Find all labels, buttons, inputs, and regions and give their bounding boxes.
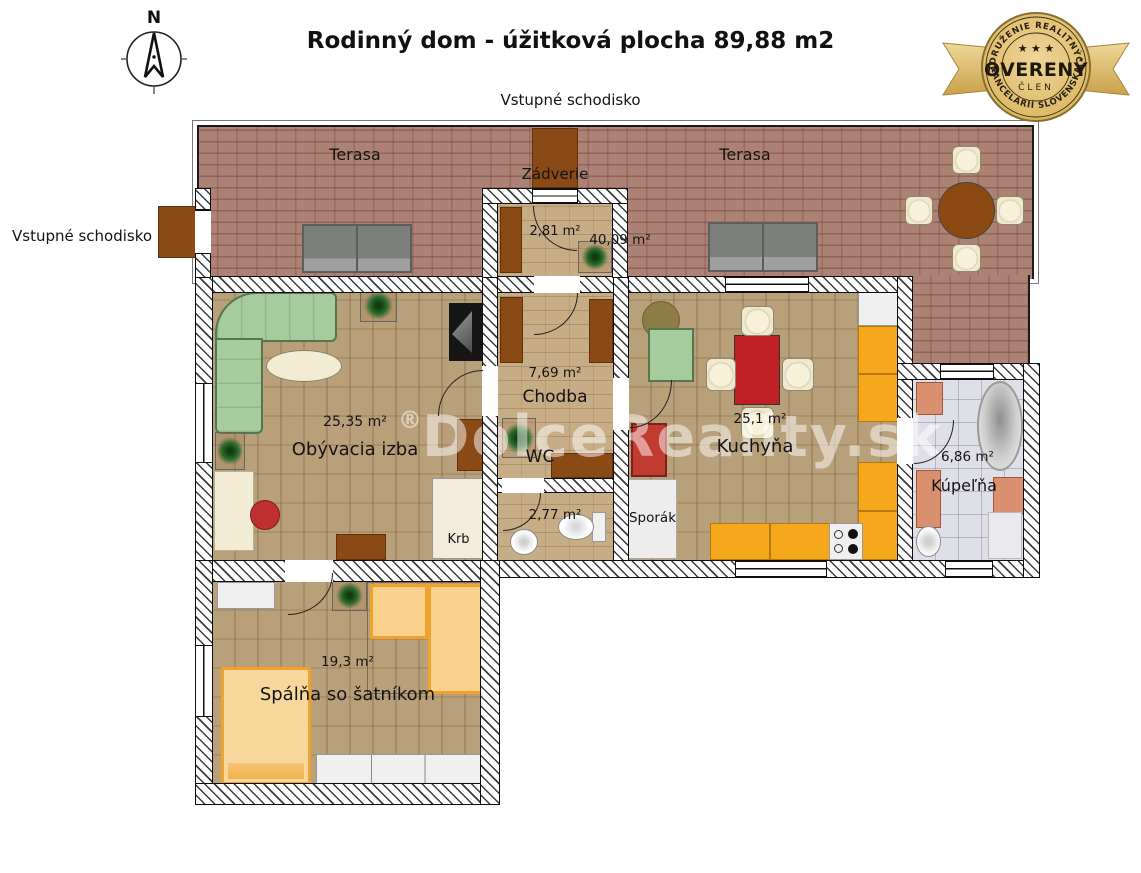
door-opening-hall-kitchen (613, 378, 629, 430)
bathroom-sink (916, 526, 941, 557)
terrace-chair-top (952, 146, 981, 174)
chodba-cabinet-right (589, 299, 613, 363)
window-kitchen-top (725, 277, 809, 292)
wardrobe-side (428, 584, 484, 694)
bathroom-name-label: Kúpeľňa (908, 477, 1020, 495)
wc-area-label: 2,77 m² (505, 508, 605, 524)
kitchen-chair-left (706, 358, 736, 391)
zadverie-label: Zádverie (480, 166, 630, 183)
wall-bedroom-top (195, 560, 497, 582)
living-coffee-table (266, 350, 342, 382)
terrace-chair-right (996, 196, 1024, 225)
burner-icon (834, 544, 843, 553)
fireplace: Krb (432, 478, 485, 559)
left-staircase-label: Vstupné schodisko (12, 228, 162, 245)
wall-bedroom-right (480, 560, 500, 805)
terrace-chair-bottom (952, 244, 981, 272)
bedroom-shelf (217, 582, 275, 609)
bed-blanket (228, 763, 304, 779)
window-bathroom-top (940, 364, 994, 379)
bedroom-area-label: 19,3 m² (290, 655, 405, 671)
wc-sink (510, 529, 538, 555)
terrace-sofa-right (708, 222, 818, 272)
burner-icon (848, 529, 858, 539)
terrace-sofa-left (302, 224, 412, 273)
zadverie-area-label: 2,81 m² (505, 225, 605, 240)
window-zadverie-top (532, 189, 578, 203)
burner-icon (834, 530, 843, 539)
wardrobe-top (370, 584, 428, 639)
wall-entry-pillar-top (195, 188, 211, 210)
kitchen-counter-bottom (710, 523, 830, 560)
door-opening-zadverie-chodba (534, 276, 580, 293)
kitchen-name-label: Kuchyňa (690, 437, 820, 458)
bathroom-area-label: 6,86 m² (915, 450, 1020, 466)
compass-n-letter: N (147, 8, 161, 28)
living-rug (214, 471, 254, 551)
living-plant-top (360, 289, 397, 322)
zadverie-cabinet (500, 207, 522, 273)
door-opening-kitchen-bath (897, 418, 913, 464)
stove-label: Sporák (629, 511, 676, 527)
kitchen-area-label: 25,1 m² (705, 412, 815, 428)
wall-bathroom-right (1023, 363, 1040, 578)
badge-overeny-text: OVERENÝ (984, 57, 1088, 81)
door-opening-entry-left (195, 210, 211, 254)
window-kitchen-bottom (735, 561, 827, 577)
stove: Sporák (628, 479, 677, 559)
kitchen-chair-top (741, 306, 774, 336)
living-name-label: Obývacia izba (270, 440, 440, 461)
living-cabinet-bottom (336, 534, 386, 560)
living-plant-left (215, 432, 245, 470)
wall-bedroom-bottom (195, 783, 500, 805)
kitchen-cooktop (829, 523, 863, 560)
living-area-label: 25,35 m² (290, 414, 420, 430)
bedroom-name-label: Spálňa so šatníkom (230, 685, 465, 706)
door-opening-living-hall (482, 366, 498, 416)
terrace-round-table (938, 182, 995, 239)
kitchen-cabinet-right-2 (858, 462, 898, 560)
tv-screen (452, 311, 472, 353)
wall-hall-left (482, 276, 498, 561)
terrace-left-label: Terasa (290, 146, 420, 164)
window-living-left (195, 383, 213, 463)
floorplan-page: Rodinný dom - úžitková plocha 89,88 m2 V… (0, 0, 1141, 873)
burner-icon (848, 544, 858, 554)
kitchen-cabinet-white-top (858, 292, 898, 326)
kitchen-armchair-green (648, 328, 694, 382)
living-tv (449, 303, 483, 361)
badge-stars: ★ ★ ★ (1018, 42, 1055, 55)
verified-member-badge: ZDRUŽENIE REALITNÝCH KANCELÁRIÍ SLOVENSK… (933, 5, 1139, 125)
chodba-cabinet-left (500, 297, 523, 363)
window-bathroom-bottom (945, 561, 993, 577)
living-corner-sofa-top (215, 292, 337, 342)
window-bedroom-left (195, 645, 213, 717)
fireplace-label: Krb (447, 533, 469, 548)
kitchen-chair-right (782, 358, 814, 391)
compass-icon: N (113, 5, 195, 101)
bedroom-plant (332, 580, 367, 611)
chodba-name-label: Chodba (505, 388, 605, 408)
wc-name-label: WC (505, 448, 575, 468)
terrace-right-label: Terasa (680, 146, 810, 164)
living-red-table (250, 500, 280, 530)
badge-clen-text: ČLEN (1018, 81, 1054, 93)
terrace-right-column (912, 275, 1030, 365)
living-corner-sofa-side (215, 338, 263, 434)
terrace-chair-left (905, 196, 933, 225)
kitchen-table (734, 335, 780, 405)
chodba-area-label: 7,69 m² (505, 366, 605, 382)
bedroom-cabinets-bottom (316, 754, 481, 785)
entry-mat-left (158, 206, 196, 258)
wall-entry-pillar-bottom (195, 252, 211, 278)
shower-tray (988, 512, 1022, 559)
door-opening-chodba-wc (502, 478, 544, 493)
